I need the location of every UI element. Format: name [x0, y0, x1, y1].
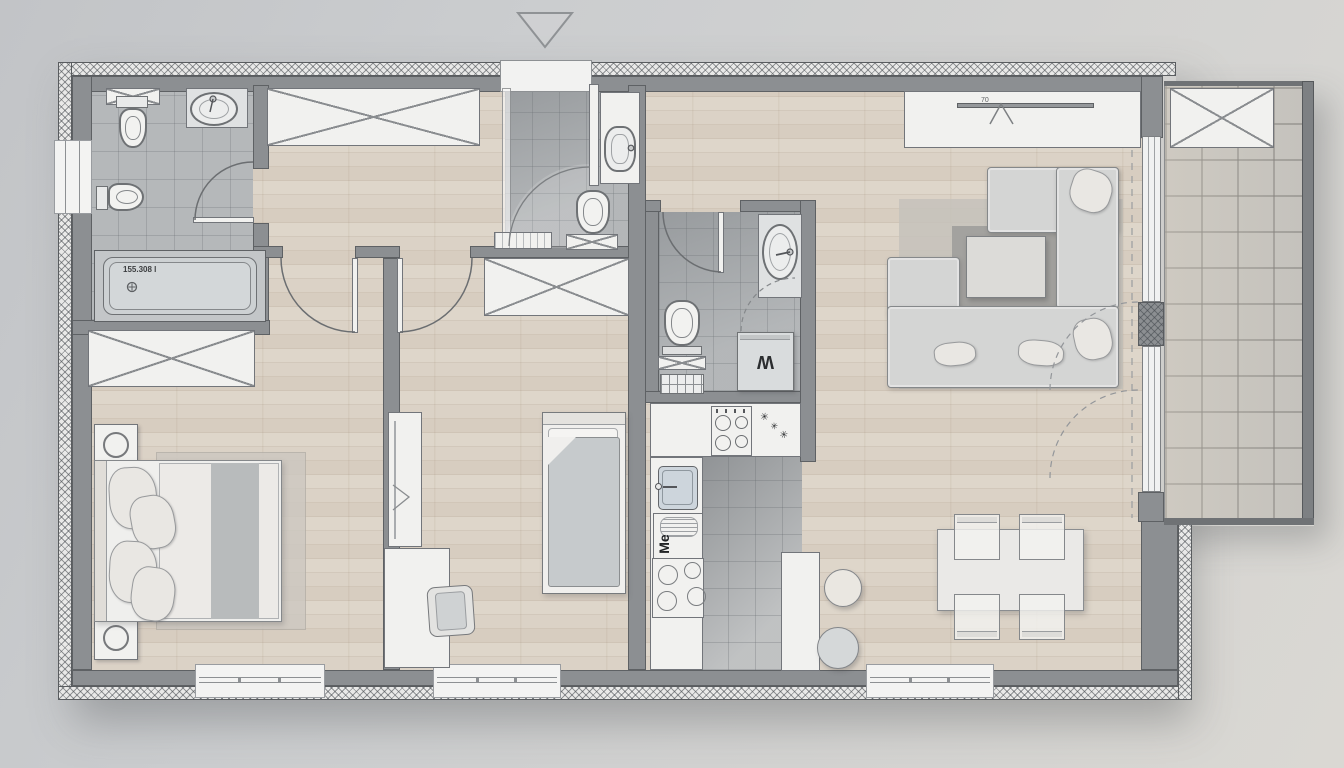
- window-glass-line: [199, 677, 321, 683]
- dishwasher: Me: [653, 513, 703, 559]
- window-living: [866, 664, 994, 698]
- balcony-railing-right: [1302, 81, 1314, 524]
- dining-chair: [954, 594, 1000, 640]
- bath2-sink-basin: [762, 224, 798, 280]
- wall-right-top: [1141, 76, 1163, 138]
- hob-circle: [684, 562, 701, 579]
- balcony-rim-top: [1164, 81, 1314, 86]
- window-glass-line: [870, 677, 990, 683]
- wc-cistern-box: [566, 234, 618, 250]
- balcony-glass-door-lower: [1142, 346, 1161, 492]
- entrance-threshold: [500, 60, 592, 92]
- wall-right-lower: [1141, 520, 1178, 670]
- washing-machine: W: [737, 332, 794, 391]
- bar-stool-2: [817, 627, 859, 669]
- dining-chair: [1019, 514, 1065, 560]
- balcony-glass-door-upper: [1142, 136, 1161, 302]
- basin-inner: [611, 134, 629, 164]
- tv-size-label: 70: [981, 97, 989, 104]
- basin-inner: [769, 233, 791, 271]
- bath1-sink-basin: [190, 92, 238, 126]
- bath2-radiator: [660, 374, 704, 394]
- bath2-toilet-tank: [662, 346, 702, 355]
- kitchen-hob-unit: [652, 558, 704, 618]
- window-glass-line: [437, 677, 557, 683]
- wc-sink-basin: [604, 126, 636, 172]
- kitchen-sink: [658, 466, 698, 510]
- glass-wall-pillar-mid: [1138, 302, 1164, 346]
- single-bed-headboard: [543, 413, 625, 425]
- bedroom2-wall-unit: [388, 412, 422, 547]
- glass-wall-pillar-low: [1138, 492, 1164, 522]
- burner: [735, 416, 748, 429]
- dining-chair: [1019, 594, 1065, 640]
- hob-circle: [657, 591, 677, 611]
- washer-top-strip: [740, 335, 790, 340]
- balcony-storage-box: [1170, 88, 1274, 148]
- burner: [715, 415, 731, 431]
- nightstand-bottom: [94, 616, 138, 660]
- toilet-seat: [583, 198, 603, 226]
- chair-back: [1022, 631, 1062, 637]
- chair-back: [957, 517, 997, 523]
- bidet-bowl: [108, 183, 144, 211]
- floor-plan-canvas: { "plan": { "labels": { "bathtub_capacit…: [0, 0, 1344, 768]
- stove: [711, 406, 752, 456]
- toilet-seat: [671, 308, 693, 338]
- chair-back: [1022, 517, 1062, 523]
- wall-bath2-top-left: [645, 200, 661, 212]
- bed-headboard: [95, 461, 107, 621]
- blanket-fold: [548, 437, 576, 465]
- toilet-bowl: [119, 108, 147, 148]
- tv-screen: [957, 103, 1094, 108]
- entry-shoe-cabinet: [494, 232, 552, 249]
- hob-circle: [658, 565, 678, 585]
- dining-chair: [954, 514, 1000, 560]
- insulation-right-lower: [1178, 522, 1192, 700]
- kitchen-island: [781, 552, 820, 671]
- lamp: [103, 625, 129, 651]
- entrance-arrow-icon: [518, 13, 572, 47]
- bidet-inner: [116, 190, 138, 204]
- faucet: [655, 483, 662, 490]
- toilet-tank: [116, 96, 148, 108]
- balcony-rim-bottom: [1164, 518, 1314, 525]
- dishwasher-brand-label: Me: [656, 532, 672, 556]
- single-bed: [542, 412, 626, 594]
- hall-wardrobe-2: [484, 258, 629, 316]
- faucet-spout: [663, 486, 677, 488]
- balcony-floor: [1164, 84, 1304, 522]
- bedroom1-door-leaf: [352, 258, 358, 333]
- hall-wardrobe: [267, 88, 480, 146]
- wall-bath2-left: [645, 200, 659, 403]
- tv-sideboard: [904, 91, 1141, 148]
- bath2-door-leaf: [718, 212, 724, 273]
- washing-machine-label: W: [757, 351, 774, 372]
- tv2-line: [394, 421, 396, 539]
- bathtub: 155.308 l: [94, 250, 266, 322]
- wc-door-leaf: [589, 84, 599, 186]
- bedroom1-wardrobe: [88, 330, 255, 387]
- bar-stool-1: [824, 569, 862, 607]
- bath2-cistern-box: [658, 356, 706, 370]
- chair-seat: [435, 591, 468, 631]
- bath1-door-leaf: [193, 217, 254, 223]
- chair-back: [957, 631, 997, 637]
- basin-inner: [199, 99, 229, 119]
- lamp: [103, 432, 129, 458]
- toilet-seat: [125, 116, 141, 140]
- bidet-tank: [96, 186, 108, 210]
- burner: [735, 435, 748, 448]
- hob-circle: [687, 587, 706, 606]
- window-bathroom1: [54, 140, 92, 214]
- bed-runner: [211, 463, 259, 619]
- window-bedroom2: [433, 664, 561, 698]
- coffee-table: [966, 236, 1046, 298]
- burner: [715, 435, 731, 451]
- wall-bath2-right: [800, 200, 816, 462]
- double-bed: [94, 460, 282, 622]
- insulation-top: [58, 62, 1176, 76]
- wc-toilet-bowl: [576, 190, 610, 234]
- window-bedroom1: [195, 664, 325, 698]
- bedroom2-door-leaf: [397, 258, 403, 333]
- bathtub-capacity-label: 155.308 l: [123, 265, 156, 274]
- desk-chair: [426, 584, 475, 637]
- bath2-toilet-bowl: [664, 300, 700, 346]
- wall-hall-south-b: [355, 246, 400, 258]
